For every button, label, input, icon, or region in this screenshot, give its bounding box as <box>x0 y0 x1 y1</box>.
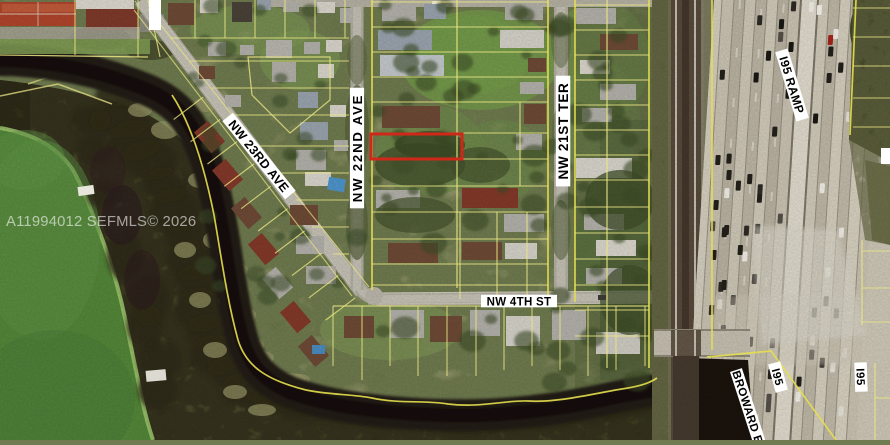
svg-text:NW 22ND AVE: NW 22ND AVE <box>350 94 365 202</box>
svg-text:NW 4TH ST: NW 4TH ST <box>487 296 552 308</box>
svg-text:NW 21ST TER: NW 21ST TER <box>556 83 571 180</box>
svg-text:I95: I95 <box>853 368 866 386</box>
svg-text:A11994012 SEFMLS© 2026: A11994012 SEFMLS© 2026 <box>6 214 196 230</box>
